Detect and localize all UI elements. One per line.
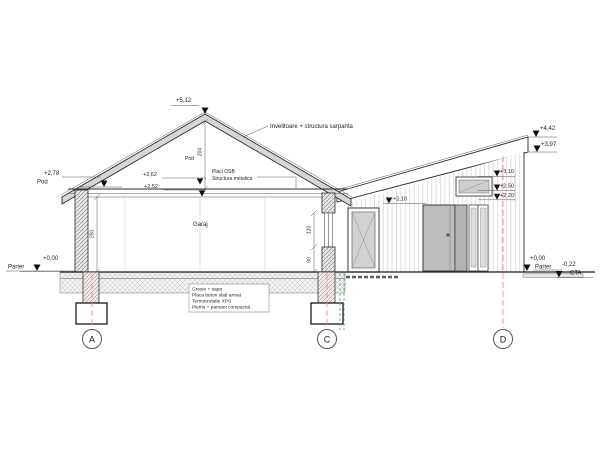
left-wall-section bbox=[75, 190, 88, 272]
door-head-label: +2,10 bbox=[393, 197, 407, 203]
level-triangle-icon bbox=[197, 179, 203, 185]
level-triangle-icon bbox=[202, 108, 209, 115]
clerestory-window bbox=[456, 177, 492, 196]
cta-level-label: -0,22 bbox=[562, 262, 576, 268]
grid-axis-d-label: D bbox=[500, 335, 507, 345]
room-height-dim: 250 bbox=[90, 230, 96, 239]
floor-note-4: Pietris + pamant compactat bbox=[192, 305, 251, 311]
parter-right-name: Parter bbox=[535, 265, 551, 271]
osb-note: Placi OSB bbox=[212, 169, 235, 175]
fascia-bottom-label: +3,97 bbox=[541, 142, 557, 148]
level-triangle-icon bbox=[101, 181, 108, 188]
clerestory-top-label: +3,10 bbox=[500, 169, 514, 175]
grid-axes: A C D bbox=[83, 330, 513, 349]
plate-lower-label: +2,52 bbox=[144, 184, 158, 190]
window-height-dim: 120 bbox=[307, 226, 313, 235]
level-triangle-icon bbox=[524, 265, 531, 272]
tall-window bbox=[348, 208, 379, 272]
attic-label: Pod bbox=[185, 156, 194, 162]
cta-level-name: CTA bbox=[570, 271, 582, 277]
roof-note-leader bbox=[243, 126, 268, 137]
ridge-level: +5,12 bbox=[171, 98, 209, 114]
right-wing-elevation bbox=[337, 135, 595, 278]
entrance-door bbox=[423, 205, 488, 271]
garage-interior bbox=[88, 197, 322, 272]
garage-section: Garaj 204 Pod 250 120 90 Placi OSB bbox=[61, 112, 354, 275]
parter-left-level: +0,00 Parter bbox=[6, 256, 76, 271]
door-sidelight bbox=[469, 205, 488, 271]
floor-note-2: Placa beton slab armat bbox=[192, 293, 242, 299]
parter-left-name: Parter bbox=[8, 265, 24, 271]
grid-axis-c-label: C bbox=[324, 335, 331, 345]
grid-bubble-c: C bbox=[318, 330, 337, 349]
fascia-bottom-level: +3,97 bbox=[528, 142, 557, 152]
grid-bubble-d: D bbox=[494, 330, 513, 349]
architectural-section-drawing: Garaj 204 Pod 250 120 90 Placi OSB bbox=[0, 0, 600, 450]
parter-right-label: +0,00 bbox=[530, 256, 546, 262]
fascia-top-level: +4,42 bbox=[528, 126, 557, 137]
pod-level-name: Pod bbox=[37, 180, 48, 186]
floor-notes-box: Gresie + sapa Placa beton slab armat Ter… bbox=[189, 284, 269, 312]
door-side-panel bbox=[455, 205, 467, 271]
plate-upper-level: +2,62 bbox=[143, 172, 206, 185]
ridge-level-label: +5,12 bbox=[176, 98, 192, 104]
room-label: Garaj bbox=[193, 222, 208, 228]
parter-right-level: +0,00 Parter bbox=[524, 256, 563, 271]
plate-lower-level: +2,52 bbox=[144, 184, 206, 197]
grid-axis-a-label: A bbox=[89, 335, 95, 345]
fascia-top-label: +4,42 bbox=[540, 126, 556, 132]
parapet-height-dim: 90 bbox=[307, 257, 313, 263]
level-triangle-icon bbox=[533, 131, 540, 138]
grid-bubble-a: A bbox=[83, 330, 102, 349]
metal-note: Structura metalica bbox=[212, 176, 253, 182]
clerestory-sill-label: +2,50 bbox=[500, 184, 514, 190]
level-triangle-icon bbox=[34, 265, 41, 272]
door-handle-icon bbox=[446, 233, 449, 236]
osb-note-group: Placi OSB Structura metalica bbox=[212, 169, 296, 188]
attic-height-dim: 204 bbox=[198, 148, 204, 157]
drawing-canvas: Garaj 204 Pod 250 120 90 Placi OSB bbox=[0, 0, 600, 450]
plate-upper-label: +2,62 bbox=[143, 172, 157, 178]
roof-note-group: Invelitoare + structura sarpanta bbox=[243, 124, 354, 137]
lintel-label: +2,20 bbox=[500, 193, 514, 199]
floor-note-1: Gresie + sapa bbox=[192, 287, 222, 293]
pod-level-label: +2,78 bbox=[44, 171, 60, 177]
right-wall-section bbox=[322, 193, 335, 272]
parter-left-label: +0,00 bbox=[43, 256, 59, 262]
level-triangle-icon bbox=[534, 146, 541, 153]
roof-note: Invelitoare + structura sarpanta bbox=[270, 124, 354, 130]
floor-note-3: Termoizolatie XPS bbox=[192, 299, 231, 305]
osb-note-leader bbox=[257, 177, 296, 188]
